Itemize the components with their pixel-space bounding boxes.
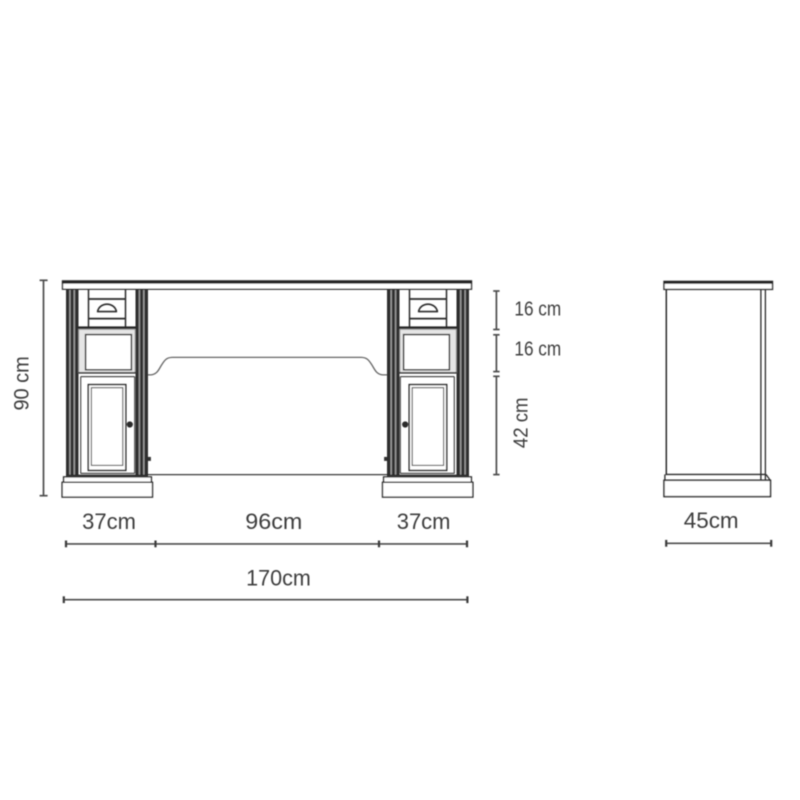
- svg-text:170cm: 170cm: [246, 565, 311, 590]
- svg-text:37cm: 37cm: [397, 509, 451, 534]
- svg-text:16 cm: 16 cm: [514, 297, 561, 320]
- svg-text:37cm: 37cm: [82, 509, 136, 534]
- svg-text:96cm: 96cm: [245, 509, 302, 534]
- svg-text:42 cm: 42 cm: [511, 397, 533, 448]
- svg-text:90 cm: 90 cm: [10, 356, 34, 410]
- svg-text:45cm: 45cm: [684, 508, 739, 533]
- svg-text:16 cm: 16 cm: [514, 337, 561, 360]
